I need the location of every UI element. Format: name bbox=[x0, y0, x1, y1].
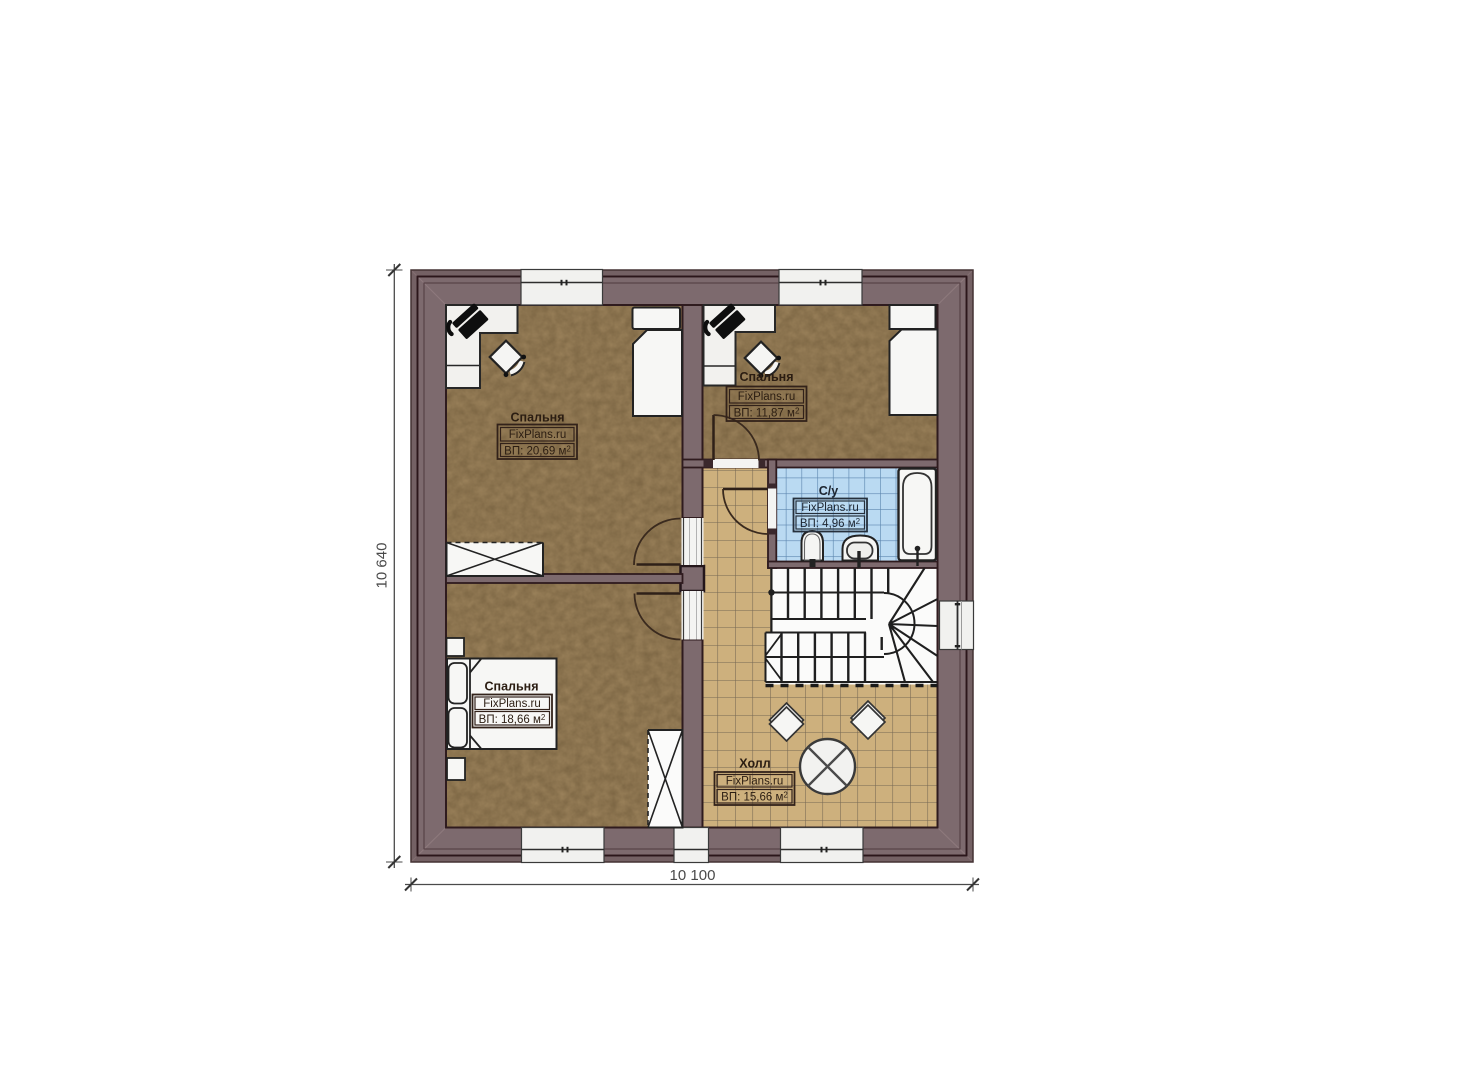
svg-text:Спальня: Спальня bbox=[485, 680, 539, 694]
svg-text:FixPlans.ru: FixPlans.ru bbox=[726, 776, 784, 788]
svg-text:FixPlans.ru: FixPlans.ru bbox=[738, 391, 796, 403]
svg-text:FixPlans.ru: FixPlans.ru bbox=[483, 698, 541, 710]
svg-text:С/у: С/у bbox=[819, 484, 839, 498]
svg-text:ВП: 18,66 м2: ВП: 18,66 м2 bbox=[479, 713, 546, 726]
svg-text:Спальня: Спальня bbox=[511, 411, 565, 425]
svg-text:ВП: 4,96 м2: ВП: 4,96 м2 bbox=[800, 517, 861, 530]
svg-text:Холл: Холл bbox=[739, 757, 770, 771]
svg-text:10 100: 10 100 bbox=[670, 867, 716, 884]
svg-text:ВП: 20,69 м2: ВП: 20,69 м2 bbox=[504, 445, 571, 458]
svg-text:Спальня: Спальня bbox=[740, 370, 794, 384]
svg-text:FixPlans.ru: FixPlans.ru bbox=[801, 502, 859, 514]
svg-text:10 640: 10 640 bbox=[374, 543, 391, 589]
svg-text:FixPlans.ru: FixPlans.ru bbox=[509, 429, 567, 441]
svg-text:ВП: 11,87 м2: ВП: 11,87 м2 bbox=[734, 407, 800, 420]
svg-text:ВП: 15,66 м2: ВП: 15,66 м2 bbox=[721, 791, 788, 804]
